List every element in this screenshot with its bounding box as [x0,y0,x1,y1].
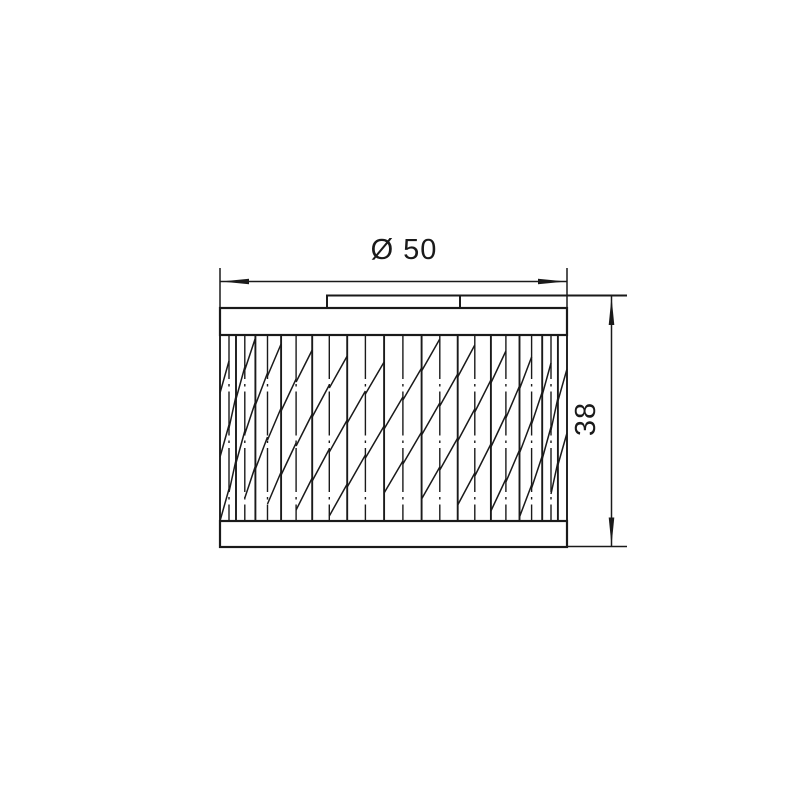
diameter-dimension-label: Ø 50 [371,234,438,266]
height-dimension: 38 [567,296,627,547]
filter-technical-drawing: Ø 50 38 [0,0,800,800]
dimension-arrow-up [609,297,615,325]
dimension-arrow-down [609,518,615,546]
top-end-cap [220,308,567,335]
dimension-arrow-right [538,279,566,285]
pleated-media [220,335,567,521]
pleat-centerlines [229,335,551,521]
dimension-arrow-left [221,279,249,285]
drawing-canvas: Ø 50 38 [0,0,800,800]
pleat-hatch-lines [220,338,567,521]
height-dimension-label: 38 [570,402,602,436]
bottom-end-cap [220,521,567,547]
top-plate [327,296,627,309]
